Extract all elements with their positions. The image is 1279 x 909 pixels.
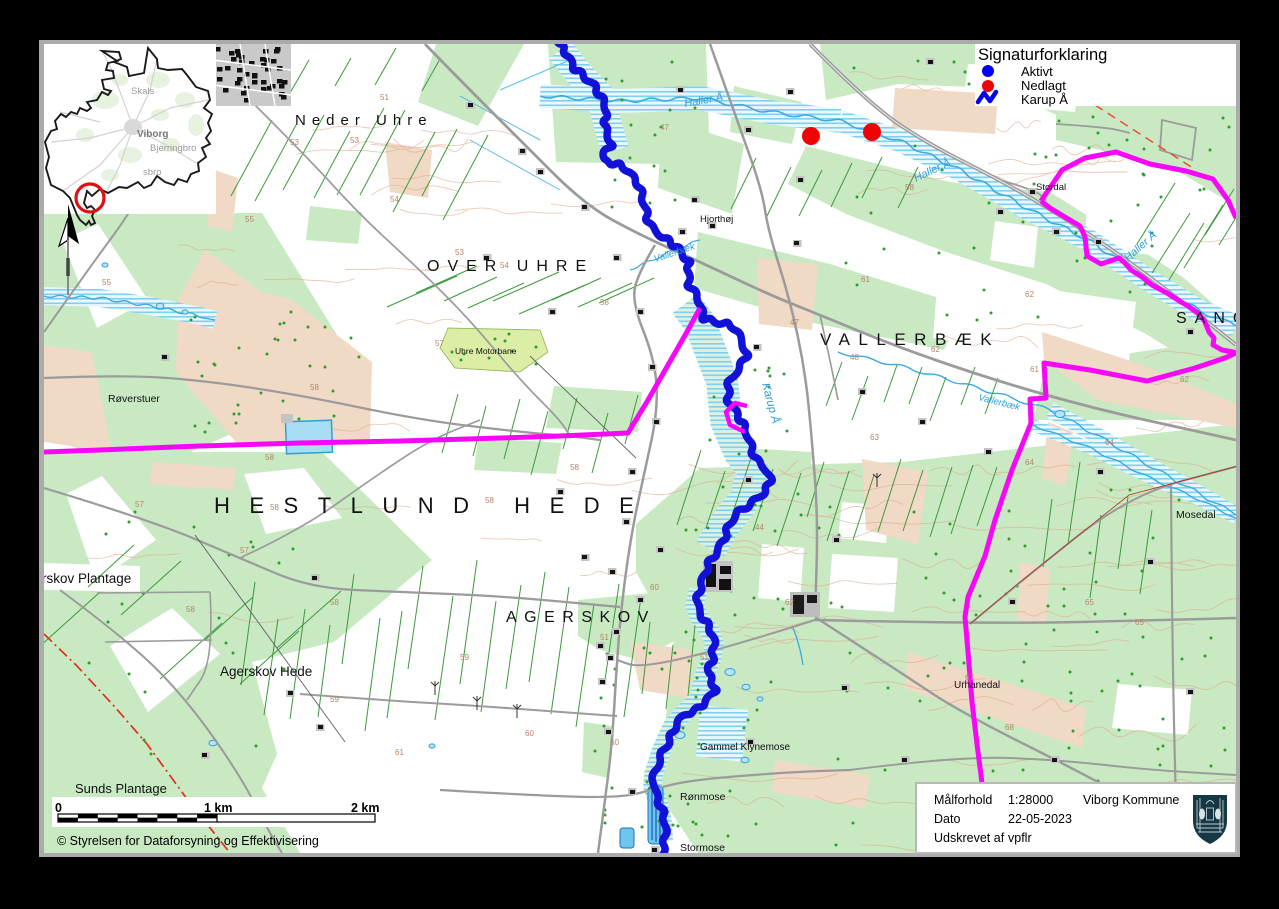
svg-text:62: 62 bbox=[785, 598, 794, 607]
svg-text:vpflr: vpflr bbox=[1008, 831, 1032, 845]
svg-text:60: 60 bbox=[650, 583, 659, 592]
svg-text:58: 58 bbox=[600, 298, 609, 307]
svg-text:VALLERBÆK: VALLERBÆK bbox=[820, 330, 1000, 349]
svg-text:59: 59 bbox=[460, 653, 469, 662]
svg-text:55: 55 bbox=[102, 278, 111, 287]
svg-text:OVER UHRE: OVER UHRE bbox=[427, 258, 594, 275]
svg-text:51: 51 bbox=[700, 653, 709, 662]
svg-text:58: 58 bbox=[330, 598, 339, 607]
svg-text:Gammel Klynemose: Gammel Klynemose bbox=[700, 742, 790, 753]
svg-text:Signaturforklaring: Signaturforklaring bbox=[978, 46, 1107, 64]
svg-text:63: 63 bbox=[870, 433, 879, 442]
svg-text:58: 58 bbox=[570, 463, 579, 472]
svg-text:1 km: 1 km bbox=[204, 801, 233, 815]
svg-text:Karup Å: Karup Å bbox=[1021, 92, 1068, 107]
svg-text:Udskrevet af: Udskrevet af bbox=[934, 831, 1005, 845]
svg-text:53: 53 bbox=[290, 138, 299, 147]
svg-text:48: 48 bbox=[850, 353, 859, 362]
svg-text:64: 64 bbox=[1105, 438, 1114, 447]
svg-text:58: 58 bbox=[265, 453, 274, 462]
svg-text:0: 0 bbox=[55, 801, 62, 815]
svg-text:Bjerringbro: Bjerringbro bbox=[150, 143, 196, 154]
svg-text:60: 60 bbox=[525, 729, 534, 738]
svg-text:68: 68 bbox=[1005, 723, 1014, 732]
svg-text:53: 53 bbox=[455, 248, 464, 257]
svg-text:47: 47 bbox=[660, 123, 669, 132]
svg-text:Viborg Kommune: Viborg Kommune bbox=[1083, 793, 1179, 807]
svg-text:sbro: sbro bbox=[143, 167, 161, 178]
svg-text:51: 51 bbox=[600, 633, 609, 642]
svg-text:53: 53 bbox=[350, 136, 359, 145]
svg-text:Skals: Skals bbox=[131, 86, 154, 97]
svg-text:65: 65 bbox=[1085, 598, 1094, 607]
svg-text:Stormose: Stormose bbox=[680, 842, 725, 854]
svg-text:58: 58 bbox=[186, 605, 195, 614]
svg-text:Målforhold: Målforhold bbox=[934, 793, 992, 807]
svg-text:Røverstuer: Røverstuer bbox=[108, 393, 160, 405]
svg-text:Mosedal: Mosedal bbox=[1176, 509, 1216, 521]
svg-text:58: 58 bbox=[310, 383, 319, 392]
svg-text:57: 57 bbox=[240, 546, 249, 555]
svg-text:Uhre Motorbane: Uhre Motorbane bbox=[455, 346, 517, 356]
svg-text:2 km: 2 km bbox=[351, 801, 380, 815]
svg-text:62: 62 bbox=[1025, 290, 1034, 299]
svg-text:57: 57 bbox=[135, 500, 144, 509]
svg-text:Rønmose: Rønmose bbox=[680, 791, 726, 803]
svg-text:Aktivt: Aktivt bbox=[1021, 64, 1053, 79]
svg-text:57: 57 bbox=[435, 339, 444, 348]
svg-text:60: 60 bbox=[610, 738, 619, 747]
svg-text:Hjorthøj: Hjorthøj bbox=[700, 214, 733, 225]
svg-text:58: 58 bbox=[905, 183, 914, 192]
svg-text:44: 44 bbox=[755, 523, 764, 532]
svg-text:Sunds Plantage: Sunds Plantage bbox=[75, 781, 167, 796]
svg-text:55: 55 bbox=[245, 215, 254, 224]
svg-text:22-05-2023: 22-05-2023 bbox=[1008, 812, 1072, 826]
svg-text:61: 61 bbox=[1030, 365, 1039, 374]
svg-text:47: 47 bbox=[790, 318, 799, 327]
svg-text:Agerskov Hede: Agerskov Hede bbox=[220, 664, 312, 679]
svg-text:rskov Plantage: rskov Plantage bbox=[42, 571, 131, 586]
svg-text:Stordal: Stordal bbox=[1036, 182, 1066, 193]
svg-text:Urhanedal: Urhanedal bbox=[954, 680, 1000, 691]
svg-text:65: 65 bbox=[1135, 618, 1144, 627]
svg-text:AGERSKOV: AGERSKOV bbox=[506, 609, 656, 626]
svg-text:1:28000: 1:28000 bbox=[1008, 793, 1053, 807]
svg-text:Neder Uhre: Neder Uhre bbox=[295, 112, 433, 129]
svg-text:Viborg: Viborg bbox=[137, 129, 168, 140]
svg-text:61: 61 bbox=[395, 748, 404, 757]
svg-text:54: 54 bbox=[390, 195, 399, 204]
svg-text:Nedlagt: Nedlagt bbox=[1021, 78, 1066, 93]
svg-text:61: 61 bbox=[861, 275, 870, 284]
svg-text:62: 62 bbox=[1180, 375, 1189, 384]
svg-text:59: 59 bbox=[330, 695, 339, 704]
svg-text:HESTLUND HEDE: HESTLUND HEDE bbox=[214, 493, 653, 518]
svg-text:© Styrelsen for Dataforsyning: © Styrelsen for Dataforsyning og Effekti… bbox=[57, 834, 319, 848]
svg-text:51: 51 bbox=[380, 93, 389, 102]
svg-text:Dato: Dato bbox=[934, 812, 960, 826]
svg-text:64: 64 bbox=[1025, 458, 1034, 467]
